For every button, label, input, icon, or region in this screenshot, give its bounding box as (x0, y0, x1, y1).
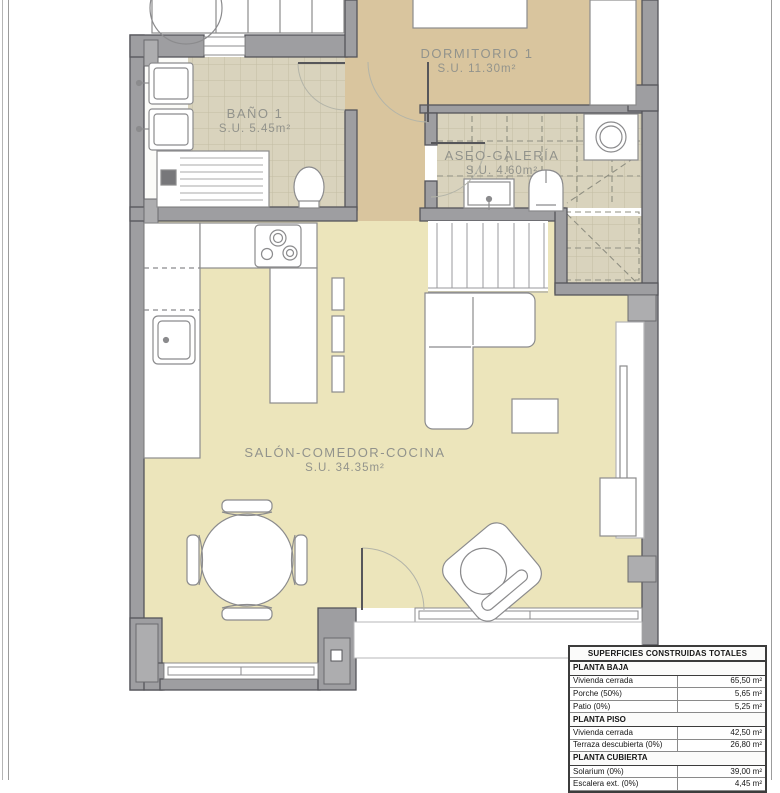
table-row: Porche (50%) 5,65 m² (570, 688, 765, 701)
bed (413, 0, 527, 28)
cabinet (600, 478, 636, 536)
table-row: Solarium (0%) 39,00 m² (570, 766, 765, 779)
room-area-bano: S.U. 5.45m² (219, 123, 291, 135)
table-cell-value: 4,45 m² (678, 778, 765, 790)
shower-drain (161, 170, 176, 185)
table-cell-label: Solarium (0%) (570, 766, 678, 778)
table-row: Terraza descubierta (0%) 26,80 m² (570, 740, 765, 753)
room-label-aseo: ASEO-GALERÍA (445, 148, 560, 163)
room-area-salon: S.U. 34.35m² (305, 462, 385, 474)
tv-board (620, 366, 627, 490)
table-cell-label: Escalera ext. (0%) (570, 778, 678, 790)
room-area-dormitorio: S.U. 11.30m² (438, 63, 517, 75)
dining-table (201, 514, 293, 606)
table-cell-value: 39,00 m² (678, 766, 765, 778)
table-cell-label: Porche (50%) (570, 688, 678, 700)
table-cell-label: Patio (0%) (570, 701, 678, 713)
table-cell-value: 5,65 m² (678, 688, 765, 700)
room-area-aseo: S.U. 4.60m² (466, 165, 538, 177)
table-cell-value: 26,80 m² (678, 740, 765, 752)
pillar-notch (331, 650, 342, 661)
stairs (428, 221, 548, 292)
wall-shelf-1 (332, 278, 344, 310)
room-label-dormitorio: DORMITORIO 1 (420, 46, 533, 61)
window-bottom-right (415, 608, 642, 622)
table-cell-label: Terraza descubierta (0%) (570, 740, 678, 752)
kitchen-sink (153, 316, 195, 364)
table-cell-value: 5,25 m² (678, 701, 765, 713)
table-row: Escalera ext. (0%) 4,45 m² (570, 778, 765, 791)
bath-sink-1 (149, 63, 193, 104)
wardrobe (590, 0, 636, 105)
table-section-planta-cubierta: PLANTA CUBIERTA (570, 752, 765, 766)
table-cell-value: 65,50 m² (678, 676, 765, 688)
table-cell-value: 42,50 m² (678, 727, 765, 739)
table-row: Vivienda cerrada 42,50 m² (570, 727, 765, 740)
kitchen-peninsula (270, 268, 317, 403)
bath-sink-2 (149, 109, 193, 150)
floorplan-sheet: DORMITORIO 1 S.U. 11.30m² BAÑO 1 S.U. 5.… (0, 0, 780, 780)
table-cell-label: Vivienda cerrada (570, 727, 678, 739)
table-section-planta-baja: PLANTA BAJA (570, 662, 765, 676)
washing-machine (584, 114, 638, 160)
surfaces-table-title: SUPERFICIES CONSTRUIDAS TOTALES (570, 647, 765, 662)
wall-shelf-2 (332, 316, 344, 352)
table-row: Vivienda cerrada 65,50 m² (570, 676, 765, 689)
surfaces-table: SUPERFICIES CONSTRUIDAS TOTALES PLANTA B… (568, 645, 767, 793)
wall-shelf-3 (332, 356, 344, 392)
table-section-planta-piso: PLANTA PISO (570, 713, 765, 727)
room-label-bano: BAÑO 1 (227, 106, 284, 121)
table-cell-label: Vivienda cerrada (570, 676, 678, 688)
room-label-salon: SALÓN-COMEDOR-COCINA (244, 445, 445, 460)
coffee-table (512, 399, 558, 433)
table-row: Patio (0%) 5,25 m² (570, 701, 765, 714)
